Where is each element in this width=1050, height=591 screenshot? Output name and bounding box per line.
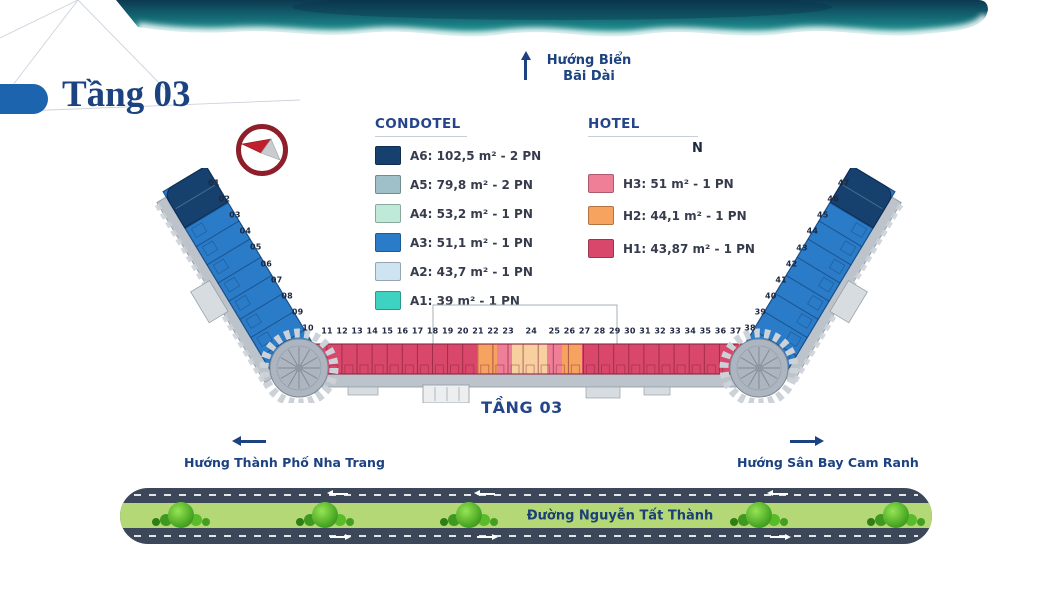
traffic-arrow-icon: [770, 493, 788, 495]
city-direction-label: Hướng Thành Phố Nha Trang: [184, 455, 385, 470]
unit-number-35: 35: [700, 327, 712, 336]
unit-number-09: 09: [292, 307, 304, 316]
unit-number-06: 06: [260, 259, 272, 268]
airport-direction-arrow-icon: [790, 440, 820, 443]
unit-number-07: 07: [271, 275, 283, 284]
unit-number-47: 47: [838, 179, 850, 188]
unit-number-15: 15: [382, 327, 394, 336]
unit-number-05: 05: [250, 243, 262, 252]
plan-floor-label: TẦNG 03: [460, 398, 584, 417]
unit-number-17: 17: [412, 327, 424, 336]
unit-number-44: 44: [807, 227, 819, 236]
unit-number-43: 43: [796, 243, 808, 252]
city-direction-arrow-icon: [236, 440, 266, 443]
unit-number-02: 02: [219, 195, 231, 204]
tree-cluster: [312, 502, 338, 528]
unit-number-40: 40: [765, 291, 777, 300]
unit-number-31: 31: [639, 327, 651, 336]
unit-number-46: 46: [827, 195, 839, 204]
unit-number-11: 11: [321, 327, 333, 336]
unit-number-19: 19: [442, 327, 454, 336]
unit-number-39: 39: [755, 307, 767, 316]
tree-cluster: [168, 502, 194, 528]
lobby-outline: [433, 305, 617, 345]
unit-number-38: 38: [744, 324, 756, 333]
traffic-arrow-icon: [770, 536, 788, 538]
unit-number-14: 14: [367, 327, 379, 336]
floorplan-page: Tầng 03 Hướng Biển Bãi Dài CONDOTEL A6: …: [0, 0, 1050, 591]
airport-direction-label: Hướng Sân Bay Cam Ranh: [737, 455, 919, 470]
unit-number-18: 18: [427, 327, 439, 336]
unit-number-28: 28: [594, 327, 606, 336]
unit-number-13: 13: [351, 327, 363, 336]
building-floorplan: [130, 168, 920, 403]
color-swatch-a6: [375, 146, 401, 165]
condotel-legend-title: CONDOTEL: [375, 116, 467, 137]
unit-number-23: 23: [502, 327, 514, 336]
unit-number-10: 10: [302, 323, 314, 332]
unit-number-26: 26: [564, 327, 576, 336]
traffic-arrow-icon: [477, 493, 495, 495]
unit-number-34: 34: [685, 327, 697, 336]
unit-number-30: 30: [624, 327, 636, 336]
sea-direction-label: Hướng Biển Bãi Dài: [537, 53, 641, 85]
road-lane-dash-bottom: [134, 535, 918, 537]
unit-number-12: 12: [336, 327, 348, 336]
unit-number-03: 03: [229, 211, 241, 220]
unit-number-24: 24: [526, 327, 538, 336]
tree-cluster: [746, 502, 772, 528]
road-lane-dash-top: [134, 494, 918, 496]
center-hotel-bar: [313, 344, 745, 374]
unit-number-27: 27: [579, 327, 591, 336]
unit-number-25: 25: [549, 327, 561, 336]
hotel-legend-title: HOTEL: [588, 116, 698, 137]
unit-number-20: 20: [457, 327, 469, 336]
unit-number-45: 45: [817, 211, 829, 220]
traffic-arrow-icon: [330, 493, 348, 495]
unit-number-41: 41: [775, 275, 787, 284]
unit-number-22: 22: [487, 327, 499, 336]
tree-cluster: [883, 502, 909, 528]
sea-direction-arrow-icon: [524, 54, 527, 80]
ocean-wave-banner: [112, 0, 992, 56]
traffic-arrow-icon: [330, 536, 348, 538]
road: Đường Nguyễn Tất Thành: [120, 488, 932, 544]
legend-item-a6: A6: 102,5 m² - 2 PN: [375, 146, 541, 165]
unit-number-36: 36: [715, 327, 727, 336]
unit-number-42: 42: [786, 259, 798, 268]
tree-cluster: [456, 502, 482, 528]
unit-number-33: 33: [669, 327, 681, 336]
unit-number-16: 16: [397, 327, 409, 336]
unit-number-37: 37: [730, 327, 742, 336]
unit-number-08: 08: [281, 291, 293, 300]
unit-number-04: 04: [240, 227, 252, 236]
road-name-label: Đường Nguyễn Tất Thành: [527, 509, 713, 524]
north-label: N: [692, 141, 703, 156]
title-tab: [0, 84, 48, 114]
unit-number-01: 01: [208, 179, 220, 188]
unit-number-21: 21: [472, 327, 484, 336]
unit-number-32: 32: [654, 327, 666, 336]
unit-number-29: 29: [609, 327, 621, 336]
page-title: Tầng 03: [62, 76, 191, 115]
traffic-arrow-icon: [477, 536, 495, 538]
